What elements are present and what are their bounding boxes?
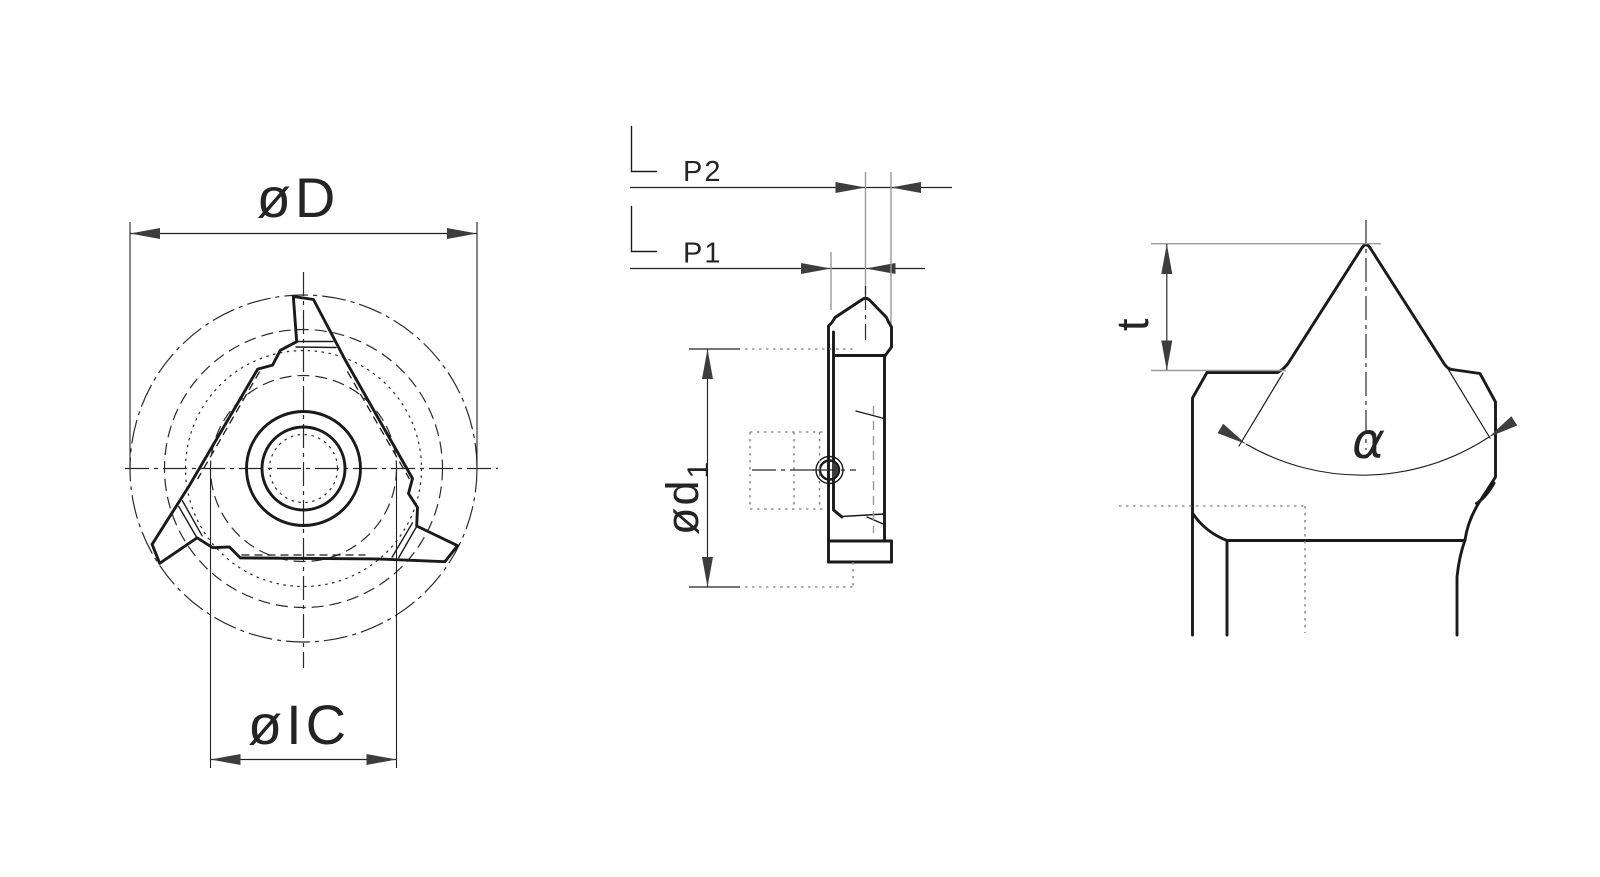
thread-angle-dimension: α	[1218, 369, 1518, 475]
lower-step-edge	[1193, 513, 1228, 635]
datum-l-symbol	[632, 127, 657, 172]
dimension-arrow	[1486, 416, 1517, 441]
thread-depth-label: t	[1107, 316, 1158, 331]
lower-face-edge	[842, 514, 884, 517]
dimension-arrow	[367, 754, 397, 765]
bore-diameter-label: ød1	[657, 460, 715, 535]
dimension-arrow	[211, 754, 241, 765]
side-hole	[812, 457, 856, 484]
pitch1-dimension: P1	[630, 207, 925, 275]
dimension-arrow	[1218, 424, 1249, 449]
insert-drawing-svg: øD øIC P2 P1	[0, 0, 1600, 877]
outer-diameter-label: øD	[257, 166, 340, 229]
pitch2-dimension: P2	[630, 127, 952, 194]
dimension-arrow	[702, 349, 713, 379]
dimension-arrow	[702, 557, 713, 587]
dimension-arrow	[836, 182, 866, 193]
datum-l-symbol	[632, 207, 657, 252]
technical-drawing-sheet: øD øIC P2 P1	[0, 0, 1600, 877]
pitch1-label: P1	[683, 238, 722, 270]
bore-diameter-dimension: ød1	[657, 349, 740, 587]
dimension-arrow	[447, 228, 477, 239]
side-view-outline	[829, 298, 892, 562]
dimension-arrow	[801, 263, 831, 274]
bore-diameter-text: ød	[657, 478, 708, 535]
reference-corner-lines	[1119, 506, 1305, 633]
pitch2-label: P2	[683, 156, 722, 188]
dimension-arrow	[891, 182, 921, 193]
dimension-arrow	[1161, 341, 1172, 371]
thread-profile-detail-view: t α	[1107, 220, 1517, 635]
bottom-flange	[829, 541, 892, 562]
inscribed-circle-label: øIC	[248, 693, 350, 756]
bore-diameter-subscript: 1	[682, 460, 715, 479]
insert-side-view: P2 P1	[630, 127, 952, 590]
dimension-arrow	[1161, 244, 1172, 274]
insert-top-view: øD øIC	[125, 166, 498, 768]
dimension-arrow	[130, 228, 160, 239]
thread-angle-label: α	[1352, 412, 1385, 470]
thread-depth-dimension: t	[1107, 244, 1381, 371]
pitch-extension-lines	[831, 172, 891, 333]
inner-left-edge	[834, 332, 843, 517]
